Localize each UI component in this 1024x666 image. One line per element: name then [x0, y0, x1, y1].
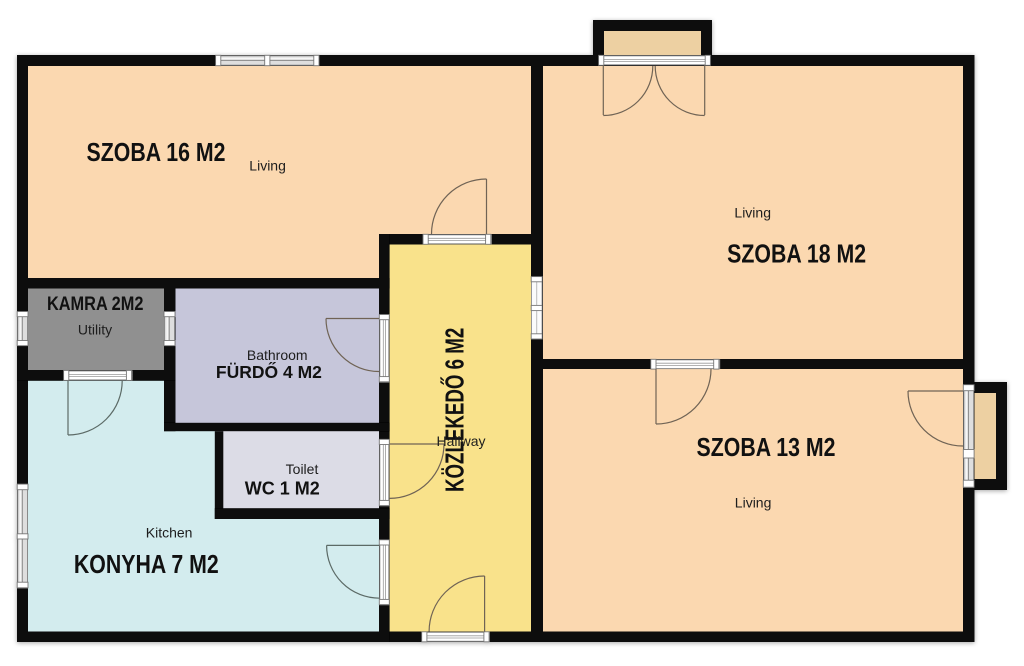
svg-text:WC 1 M2: WC 1 M2	[245, 479, 320, 499]
svg-text:KONYHA 7 M2: KONYHA 7 M2	[74, 550, 219, 580]
svg-text:SZOBA 13 M2: SZOBA 13 M2	[697, 433, 836, 463]
svg-text:Toilet: Toilet	[286, 461, 319, 477]
svg-text:Living: Living	[735, 494, 772, 510]
svg-text:Living: Living	[734, 205, 771, 221]
svg-text:Utility: Utility	[78, 321, 112, 337]
svg-text:Living: Living	[249, 158, 286, 174]
svg-text:Bathroom: Bathroom	[247, 347, 308, 363]
svg-text:KÖZLEKEDŐ 6 M2: KÖZLEKEDŐ 6 M2	[439, 328, 469, 492]
svg-text:FÜRDŐ 4 M2: FÜRDŐ 4 M2	[216, 361, 322, 382]
svg-text:SZOBA 16 M2: SZOBA 16 M2	[87, 138, 226, 168]
svg-text:SZOBA 18 M2: SZOBA 18 M2	[727, 240, 866, 270]
svg-text:Kitchen: Kitchen	[146, 525, 193, 541]
svg-text:KAMRA 2M2: KAMRA 2M2	[47, 293, 144, 314]
svg-text:Hallway: Hallway	[436, 433, 485, 449]
